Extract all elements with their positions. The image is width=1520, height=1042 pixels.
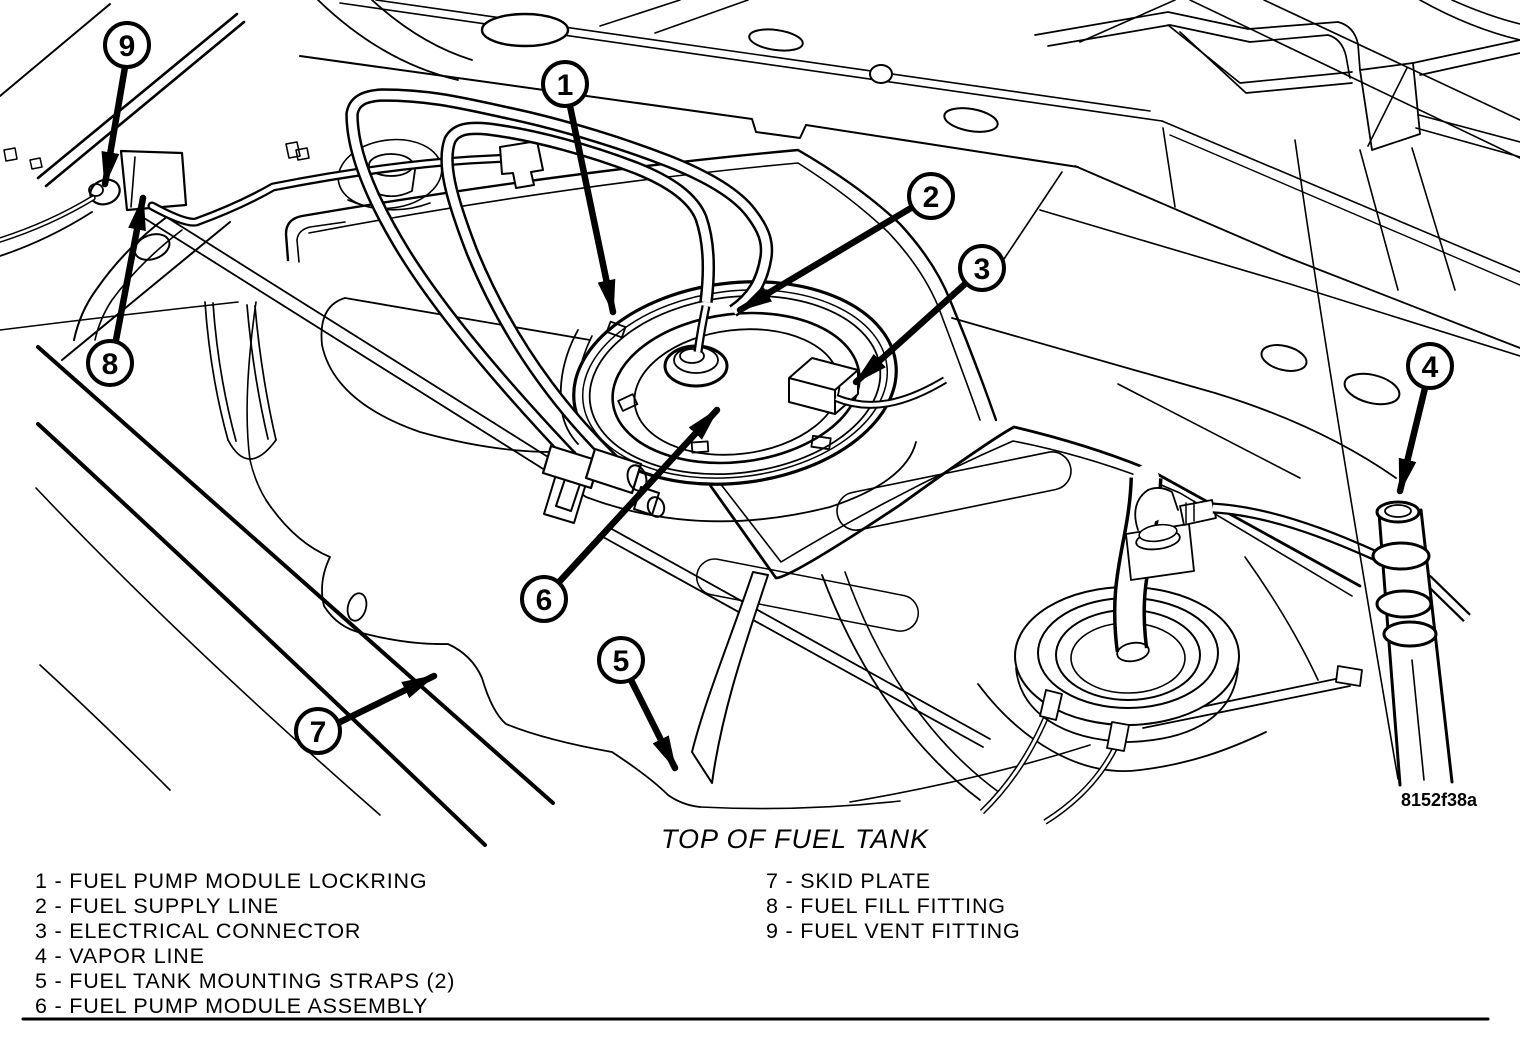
svg-text:1 - FUEL PUMP MODULE LOCKRING: 1 - FUEL PUMP MODULE LOCKRING <box>35 869 427 893</box>
svg-text:1: 1 <box>557 69 574 102</box>
svg-text:3: 3 <box>974 253 991 286</box>
svg-text:8 - FUEL FILL FITTING: 8 - FUEL FILL FITTING <box>766 894 1006 918</box>
svg-text:5 - FUEL TANK MOUNTING STRAPS: 5 - FUEL TANK MOUNTING STRAPS (2) <box>35 969 455 993</box>
svg-text:2 - FUEL SUPPLY LINE: 2 - FUEL SUPPLY LINE <box>35 894 279 918</box>
svg-text:2: 2 <box>923 181 940 214</box>
svg-text:TOP OF FUEL TANK: TOP OF FUEL TANK <box>661 824 929 854</box>
svg-text:7: 7 <box>310 716 327 749</box>
svg-text:6 - FUEL PUMP MODULE ASSEMBLY: 6 - FUEL PUMP MODULE ASSEMBLY <box>35 994 428 1018</box>
svg-text:9 - FUEL VENT FITTING: 9 - FUEL VENT FITTING <box>766 919 1021 943</box>
svg-text:7 - SKID PLATE: 7 - SKID PLATE <box>766 869 931 893</box>
svg-text:3 - ELECTRICAL CONNECTOR: 3 - ELECTRICAL CONNECTOR <box>35 919 361 943</box>
svg-text:6: 6 <box>536 584 553 617</box>
svg-text:4: 4 <box>1422 351 1439 384</box>
svg-text:4 - VAPOR LINE: 4 - VAPOR LINE <box>35 944 205 968</box>
svg-text:9: 9 <box>119 30 136 63</box>
svg-text:8: 8 <box>102 348 119 381</box>
svg-text:5: 5 <box>613 645 630 678</box>
svg-text:8152f38a: 8152f38a <box>1401 790 1478 810</box>
